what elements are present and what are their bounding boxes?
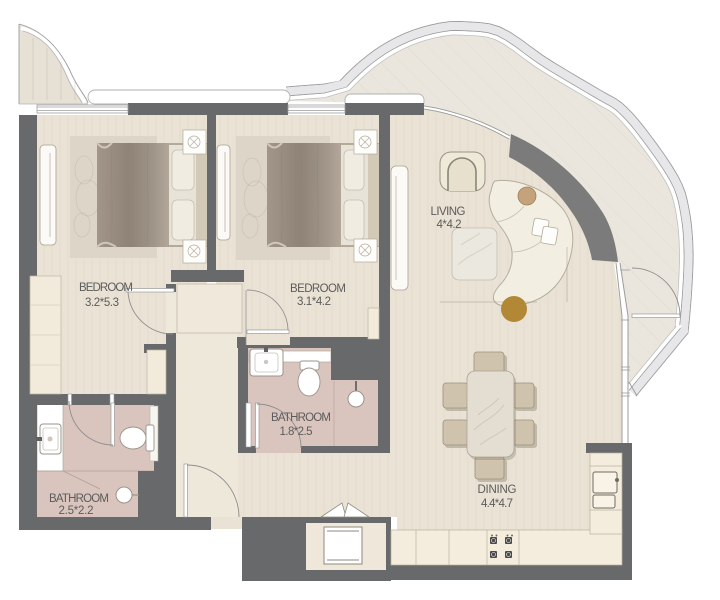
svg-text:BEDROOM: BEDROOM [290,283,346,295]
svg-text:DINING: DINING [478,484,517,496]
svg-text:BEDROOM: BEDROOM [79,282,133,294]
svg-text:BATHROOM: BATHROOM [49,493,109,505]
svg-text:4.4*4.7: 4.4*4.7 [481,498,513,510]
svg-text:LIVING: LIVING [431,206,466,218]
svg-text:1.8*2.5: 1.8*2.5 [280,426,313,438]
svg-text:2.5*2.2: 2.5*2.2 [59,505,94,517]
svg-text:BATHROOM: BATHROOM [271,412,331,424]
svg-text:4*4.2: 4*4.2 [437,219,462,231]
svg-text:3.1*4.2: 3.1*4.2 [297,296,331,308]
svg-text:3.2*5.3: 3.2*5.3 [85,297,119,309]
